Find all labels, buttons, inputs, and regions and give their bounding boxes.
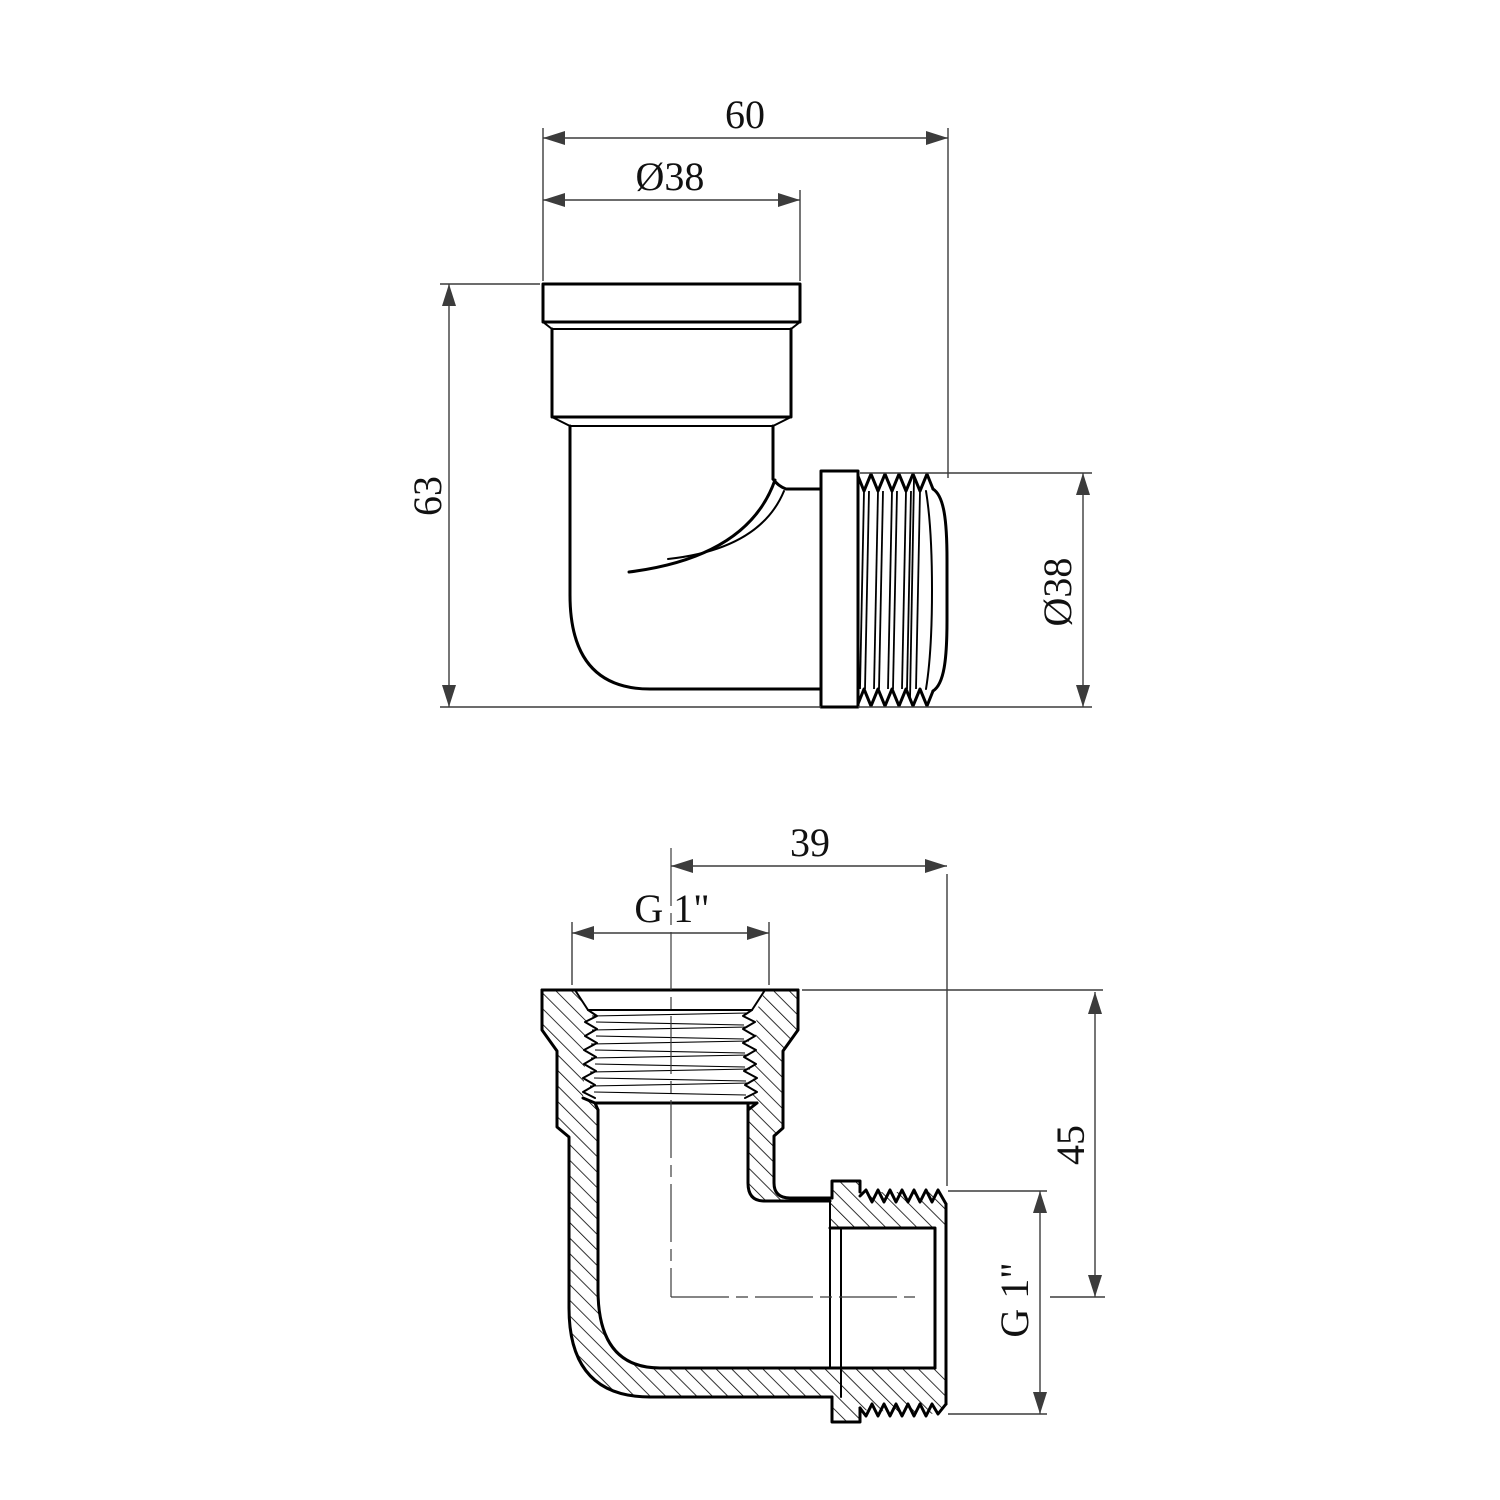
thread-bottom — [583, 1098, 757, 1110]
thread-crest-bottom — [858, 689, 933, 706]
dimension-length-39: 39 — [671, 820, 947, 1186]
thread-lines — [590, 1013, 750, 1095]
thread-crest-top — [858, 474, 933, 491]
dimension-height-63: 63 — [405, 284, 821, 707]
port-top-line — [773, 479, 821, 489]
side-flange — [821, 471, 858, 707]
technical-drawing-canvas: 60 Ø38 63 Ø38 — [0, 0, 1500, 1500]
dim-side-diameter-label: Ø38 — [1035, 558, 1080, 627]
dimension-axis-height-45: 45 — [802, 990, 1103, 1297]
technical-drawing-page: 60 Ø38 63 Ø38 — [0, 0, 1500, 1500]
dim-side-thread-label: G 1" — [992, 1262, 1037, 1337]
dim-width-label: 60 — [725, 92, 765, 137]
dim-height-label: 63 — [405, 476, 450, 516]
dim-axis-height-label: 45 — [1048, 1125, 1093, 1165]
body-bottom-curve — [570, 595, 821, 689]
thread-entry-chamfer — [575, 990, 765, 1010]
top-socket-cap — [543, 284, 800, 322]
thread-flanks — [860, 478, 920, 700]
section-view: 39 G 1" 45 G 1" — [542, 820, 1105, 1422]
top-view: 60 Ø38 63 Ø38 — [405, 92, 1092, 707]
elbow-outline — [543, 284, 947, 707]
bore-end — [830, 1228, 935, 1368]
transition-arc-outer — [629, 480, 775, 572]
thread-runout-outer — [933, 489, 947, 691]
dim-length-label: 39 — [790, 820, 830, 865]
socket-neck — [552, 329, 791, 417]
dimension-side-thread: G 1" — [948, 1191, 1047, 1414]
female-thread — [575, 990, 765, 1110]
thread-runout-inner — [926, 491, 932, 689]
dim-top-thread-label: G 1" — [634, 886, 709, 931]
dimension-top-diameter-38: Ø38 — [543, 154, 800, 281]
dim-top-diameter-label: Ø38 — [636, 154, 705, 199]
